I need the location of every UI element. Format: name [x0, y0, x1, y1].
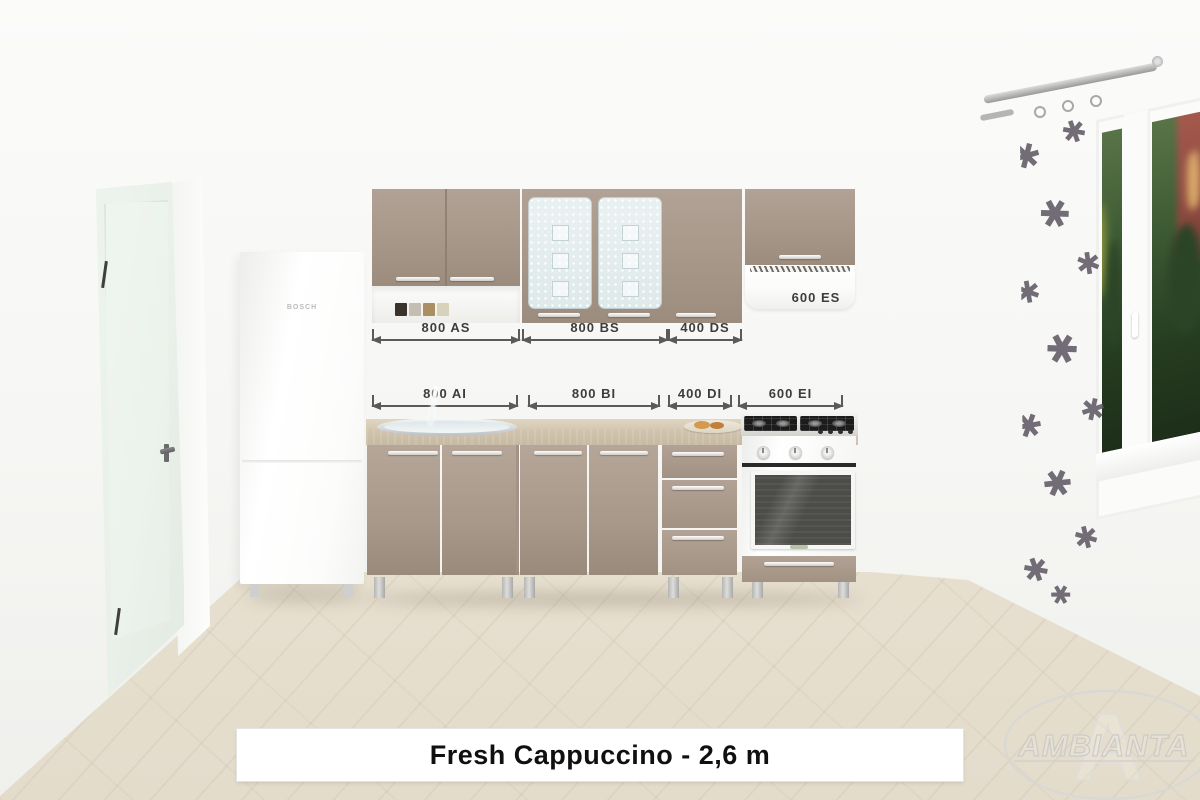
cabinet-handle — [534, 451, 582, 455]
floral-motif: ✱ — [1074, 248, 1103, 281]
dim-base-600ei: 600 EI — [738, 386, 843, 407]
floral-motif: ✱ — [1036, 461, 1078, 506]
base-door-800ai — [442, 445, 516, 575]
dimension-line — [372, 405, 518, 407]
cabinet-leg — [502, 577, 513, 598]
floral-motif: ✱ — [1058, 115, 1092, 152]
fridge-leg — [250, 584, 259, 597]
curtain-rod-finial — [1152, 56, 1163, 67]
door-panel — [104, 200, 174, 644]
cabinet-handle — [676, 313, 716, 317]
decor-box — [423, 303, 435, 316]
dim-wall-400ds: 400 DS — [668, 320, 742, 341]
floral-motif: ✱ — [1020, 137, 1044, 177]
floral-motif: ✱ — [1077, 394, 1108, 429]
oven-base-drawer — [742, 556, 856, 582]
cabinet-handle — [538, 313, 580, 317]
base-door-800bi — [589, 445, 658, 575]
hob-knob — [818, 430, 823, 434]
floral-motif: ✱ — [1045, 578, 1077, 611]
watermark-brand: AMBIANTA — [1017, 728, 1189, 763]
fridge-logo: BOSCH — [240, 304, 364, 311]
cabinet-floor-shadow — [362, 592, 862, 606]
drawer-handle — [672, 536, 724, 540]
garden-tree — [1168, 220, 1200, 336]
cabinet-leg — [722, 577, 733, 598]
curtain: ✱ ✱ ✱ ✱ ✱ ✱ ✱ ✱ ✱ ✱ ✱ ✱ — [1020, 110, 1108, 622]
window — [1096, 94, 1200, 520]
hob-knob — [838, 430, 843, 434]
glass-pattern — [622, 281, 639, 297]
cabinet-handle — [779, 255, 821, 259]
burner — [832, 420, 846, 427]
decor-box — [409, 303, 421, 316]
cabinet-leg — [752, 582, 763, 598]
building-window-glow — [1187, 150, 1200, 210]
dimension-line — [522, 339, 668, 341]
window-mullion — [1124, 109, 1150, 475]
oven-door-glass — [751, 471, 855, 549]
floral-motif: ✱ — [1020, 274, 1046, 313]
ambianta-watermark-logo: A AMBIANTA — [996, 686, 1200, 800]
cabinet-leg — [524, 577, 535, 598]
hob-knob — [848, 430, 853, 434]
window-handle — [1132, 311, 1138, 338]
food-decor — [710, 422, 724, 429]
glass-pattern — [552, 253, 569, 269]
glass-pattern — [552, 281, 569, 297]
dimension-line — [528, 405, 660, 407]
drawer-400di — [662, 445, 737, 478]
floral-motif: ✱ — [1020, 405, 1050, 447]
dim-hood-600es: 600 ES — [781, 290, 851, 305]
hood-vent-grille — [750, 266, 850, 272]
hob-knob — [828, 430, 833, 434]
dimension-line — [372, 339, 520, 341]
glass-door — [598, 197, 662, 309]
oven-knob — [757, 446, 770, 459]
cabinet-leg — [838, 582, 849, 598]
cabinet-handle — [450, 277, 494, 281]
garden-tree — [1108, 238, 1120, 349]
oven-knob — [789, 446, 802, 459]
glass-pattern — [552, 225, 569, 241]
oven-panel-strip — [742, 463, 856, 467]
hood-cabinet-600es — [745, 189, 855, 265]
decor-box — [437, 303, 449, 316]
dimension-line — [668, 339, 742, 341]
curtain-ring — [1034, 106, 1046, 118]
glass-door — [528, 197, 592, 309]
wall-cabinet-400ds — [668, 189, 742, 323]
base-door-800ai — [367, 445, 440, 575]
cabinet-handle — [396, 277, 440, 281]
curtain-rod — [983, 62, 1157, 103]
curtain-ring — [1062, 100, 1074, 112]
floral-motif: ✱ — [1030, 190, 1077, 239]
design-title: Fresh Cappuccino - 2,6 m — [430, 740, 771, 771]
curtain-rod-bracket — [980, 109, 1015, 121]
cabinet-handle — [600, 451, 648, 455]
fridge — [240, 252, 364, 584]
base-door-800bi — [520, 445, 587, 575]
fridge-door-split — [242, 460, 362, 463]
decor-box — [395, 303, 407, 316]
glass-pattern — [622, 225, 639, 241]
fridge-leg — [344, 584, 353, 597]
dim-base-800bi: 800 BI — [528, 386, 660, 407]
oven-knob — [821, 446, 834, 459]
title-bar: Fresh Cappuccino - 2,6 m — [237, 729, 963, 781]
drawer-handle — [764, 562, 834, 566]
curtain-ring — [1090, 95, 1102, 107]
sink-basin — [384, 421, 510, 433]
dim-base-800ai: 800 AI — [372, 386, 518, 407]
drawer-handle — [672, 452, 724, 456]
cabinet-leg — [374, 577, 385, 598]
dim-wall-800bs: 800 BS — [522, 320, 668, 341]
kitchen-render: BOSCH 800 AS 800 BS 400 DS 600 ES — [0, 0, 1200, 800]
food-decor — [694, 421, 710, 429]
cabinet-handle — [452, 451, 502, 455]
cabinet-leg — [668, 577, 679, 598]
burner — [808, 420, 822, 427]
dimension-line — [738, 405, 843, 407]
oven-logo — [790, 545, 808, 549]
floral-motif: ✱ — [1071, 521, 1103, 556]
cabinet-handle — [608, 313, 650, 317]
burner — [776, 420, 790, 427]
cabinet-seam — [516, 445, 519, 575]
dimension-line — [668, 405, 732, 407]
dim-base-400di: 400 DI — [668, 386, 732, 407]
window-pane — [1152, 110, 1200, 442]
cabinet-handle — [388, 451, 438, 455]
burner — [752, 420, 766, 427]
cabinet-seam — [445, 189, 447, 286]
glass-pattern — [622, 253, 639, 269]
floral-motif: ✱ — [1039, 324, 1087, 375]
dim-wall-800as: 800 AS — [372, 320, 520, 341]
drawer-handle — [672, 486, 724, 490]
